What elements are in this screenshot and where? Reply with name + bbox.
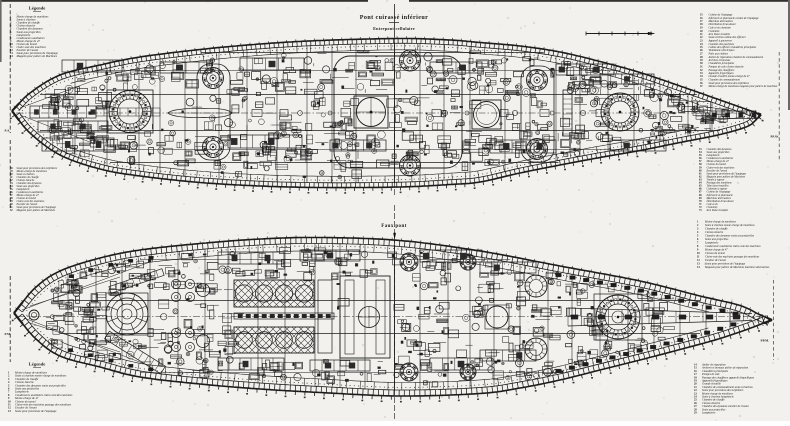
svg-text:Entrepont cellulaire: Entrepont cellulaire (373, 26, 415, 31)
svg-text:P.A.: P.A. (5, 129, 11, 133)
svg-text:Magasin pour paliers de Machin: Magasin pour paliers de Machines machine… (704, 266, 769, 269)
svg-text:Faux pont: Faux pont (381, 224, 406, 229)
svg-text:P.M.: P.M. (5, 332, 11, 336)
svg-text:Aire blanc travaille: Aire blanc travaille (706, 209, 729, 212)
svg-text:Lampisterie: Lampisterie (701, 412, 716, 415)
svg-text:Pont cuirassé inférieur: Pont cuirassé inférieur (360, 15, 428, 21)
svg-text:PP.AV.: PP.AV. (771, 135, 780, 139)
svg-text:PP.M.: PP.M. (761, 339, 770, 343)
svg-text:Soute pour provisions de l'équ: Soute pour provisions de l'équipage (15, 409, 57, 413)
svg-text:Monte-charge de munitions maga: Monte-charge de munitions magasin pour p… (708, 85, 778, 88)
svg-text:Magasin pour paliers de Machin: Magasin pour paliers de Machines (16, 54, 58, 58)
svg-text:Légende: Légende (29, 362, 46, 367)
svg-text:Magasin pour paliers de Machin: Magasin pour paliers de Machines (16, 209, 56, 212)
svg-text:Légende: Légende (29, 6, 46, 11)
